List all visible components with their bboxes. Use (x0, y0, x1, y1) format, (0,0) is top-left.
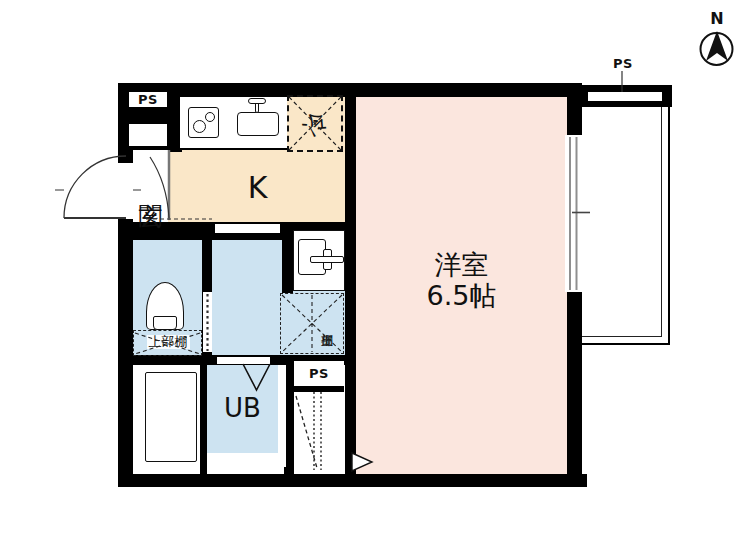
compass-label: N (710, 9, 723, 28)
kitchen-label-wrap: K (170, 152, 345, 222)
compass-label-wrap: N (704, 8, 730, 28)
ps-box-bottom: PS (294, 361, 344, 386)
upper-shelf-label-washroom-wrap: 上部棚 (313, 296, 341, 352)
compass-needle (706, 31, 728, 61)
doorway-kitchen-washroom (215, 224, 280, 233)
unit-bath-label: UB (224, 393, 261, 423)
fridge-label-wrap: 冷 (287, 95, 343, 152)
wall-laundry-bath (200, 365, 207, 474)
wall-center-vertical (345, 83, 356, 474)
sink-icon (237, 112, 279, 136)
wall-bottom (118, 474, 587, 487)
toilet-seat-icon (153, 316, 177, 330)
unit-bath-label-wrap: UB (207, 375, 278, 440)
kitchen-label: K (248, 170, 268, 205)
main-room-label: 洋室 (435, 249, 489, 280)
fridge-label: 冷 (296, 104, 334, 142)
balcony-railing (582, 107, 662, 337)
kitchen-counter (180, 97, 287, 150)
shoe-cabinet (129, 124, 167, 146)
bath-edge-right (278, 365, 286, 467)
ps-label-top-right-wrap: PS (608, 55, 638, 71)
upper-shelf-label-toilet: 上部棚 (147, 335, 190, 349)
entrance-door-arc (64, 156, 126, 218)
upper-shelf-label-toilet-wrap: 上部棚 (135, 332, 201, 352)
ps-label-top-right: PS (613, 56, 633, 71)
entrance-label-wrap: 玄関 (134, 152, 167, 220)
floor-plan: PS PS 玄関 K (0, 0, 750, 550)
washbasin-faucet-icon (310, 256, 344, 263)
washbasin-counter (293, 230, 345, 291)
balcony (582, 107, 670, 345)
bath-edge-bottom (207, 453, 278, 467)
ps-label-top-left: PS (138, 92, 158, 107)
compass-circle (701, 33, 733, 65)
wall-left-lower (118, 219, 133, 487)
doorway-toilet (203, 292, 212, 352)
stove-icon (188, 107, 219, 138)
entrance-label: 玄関 (135, 184, 167, 188)
ps-box-top-left: PS (129, 92, 167, 107)
main-room-size-label: 6.5帖 (427, 280, 497, 311)
wall-washbasin-stub (282, 222, 293, 293)
ps-duct-top-right (588, 92, 662, 101)
doorway-bath (217, 357, 270, 364)
main-room-label-wrap: 洋室 6.5帖 (356, 242, 567, 318)
ladder-closet (294, 392, 344, 470)
ps-label-bottom: PS (309, 366, 329, 381)
faucet-handle-icon (248, 98, 266, 104)
washing-machine-pan (145, 372, 197, 462)
window-right (565, 135, 583, 292)
